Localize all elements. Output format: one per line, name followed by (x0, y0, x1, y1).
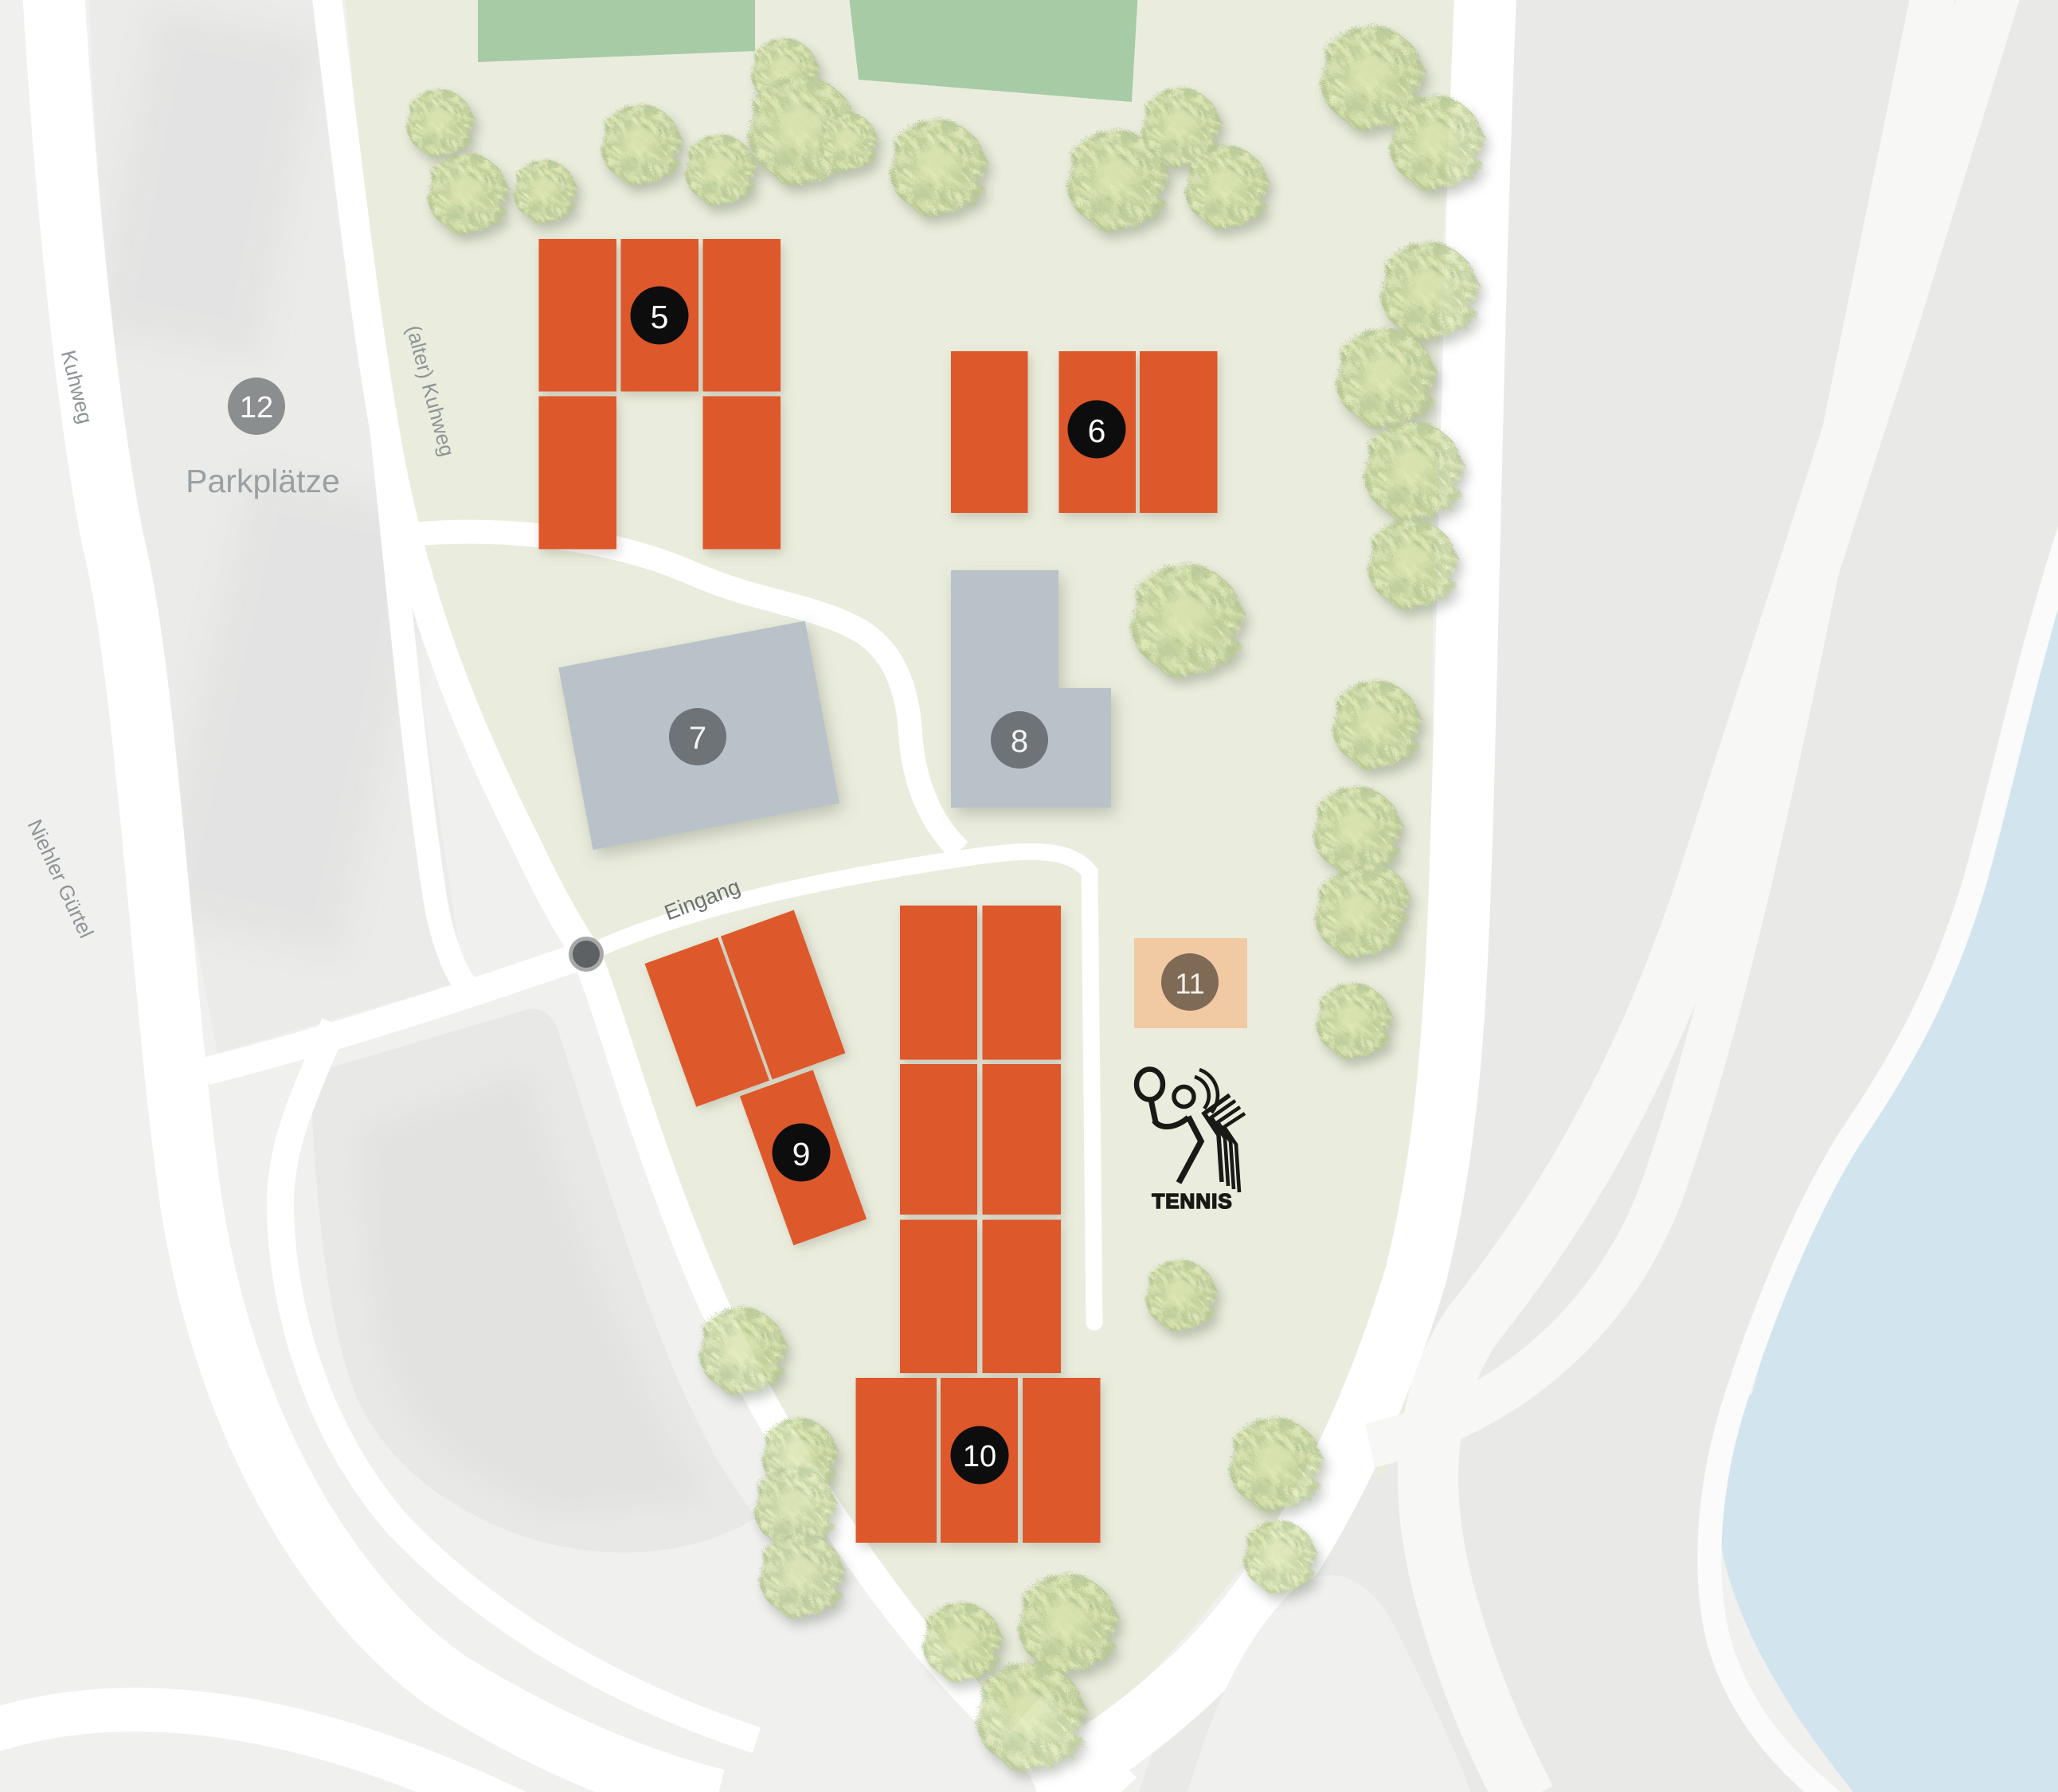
svg-text:5: 5 (651, 299, 669, 335)
svg-text:12: 12 (240, 391, 273, 425)
svg-text:8: 8 (1011, 724, 1028, 759)
svg-text:TENNIS: TENNIS (1152, 1189, 1232, 1213)
svg-text:11: 11 (1175, 968, 1204, 1000)
svg-text:9: 9 (792, 1136, 811, 1172)
svg-text:7: 7 (689, 721, 706, 756)
svg-text:Parkplätze: Parkplätze (186, 463, 340, 499)
svg-text:10: 10 (963, 1440, 996, 1473)
svg-text:6: 6 (1088, 413, 1106, 449)
